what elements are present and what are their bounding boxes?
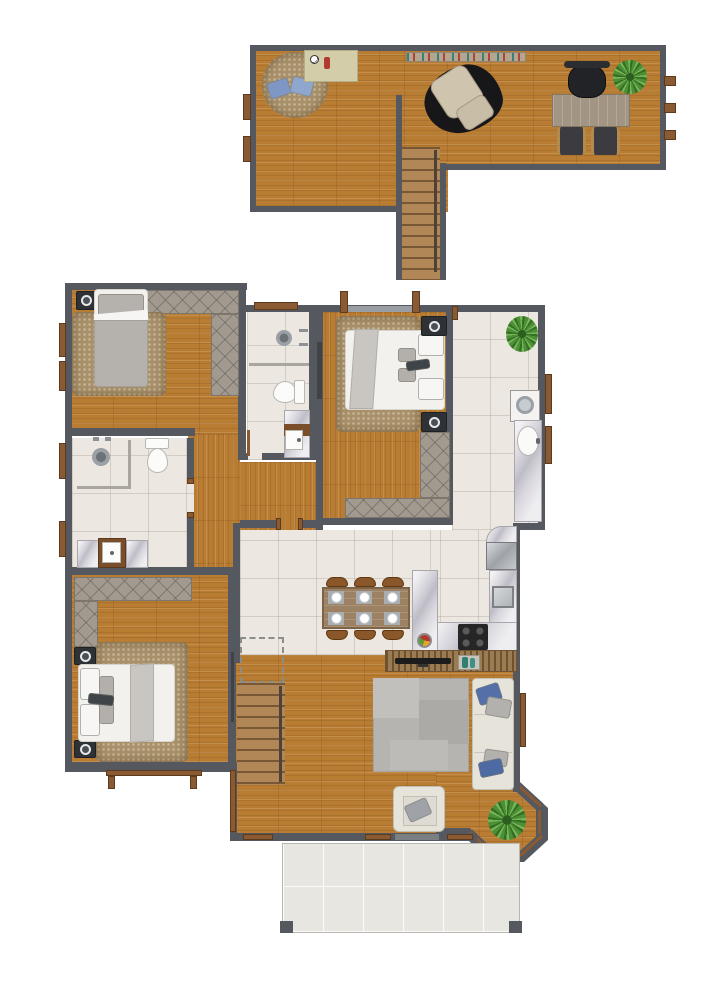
upper-wall-bottom-right bbox=[442, 164, 666, 170]
towel-hook-icon bbox=[105, 437, 111, 441]
plate-icon bbox=[387, 613, 398, 624]
kitchen-plant-icon bbox=[506, 316, 538, 352]
bathroom2-window-icon bbox=[59, 443, 66, 479]
bedroom2-pillow-white bbox=[418, 378, 444, 400]
bedroom2-window-post-icon bbox=[412, 291, 420, 313]
loft-window-icon bbox=[243, 94, 251, 120]
wall-bedroom3-top bbox=[65, 567, 235, 575]
porch-floor bbox=[282, 843, 520, 933]
dining-chair bbox=[326, 630, 348, 640]
porch-post bbox=[509, 921, 522, 933]
study-window-icon bbox=[664, 76, 676, 86]
bedroom3-deck-post bbox=[108, 776, 115, 789]
plate-icon bbox=[331, 613, 342, 624]
living-plant-icon bbox=[488, 800, 526, 840]
study-window-icon bbox=[664, 130, 676, 140]
plate-icon bbox=[387, 592, 398, 603]
understair-storage-outline bbox=[240, 637, 284, 683]
toilet-icon bbox=[147, 448, 168, 473]
soccer-ball-icon bbox=[310, 55, 319, 64]
bathroom2-faucet-icon bbox=[110, 551, 114, 555]
cooktop bbox=[458, 624, 488, 650]
porch-post bbox=[280, 921, 293, 933]
bottom-window-icon bbox=[447, 834, 473, 840]
bedroom2-closet-bottom bbox=[345, 498, 450, 518]
bedroom1-window-icon bbox=[59, 323, 66, 357]
guest-chair bbox=[591, 127, 620, 155]
bedroom3-door-leaf bbox=[231, 652, 234, 722]
sofa-pillow-gray bbox=[485, 696, 513, 719]
plate-icon bbox=[331, 592, 342, 603]
dining-chair bbox=[382, 577, 404, 587]
bathroom1-faucet-icon bbox=[297, 438, 301, 442]
decor-bottles-icon bbox=[470, 658, 475, 668]
bedroom1-closet-top bbox=[143, 290, 239, 314]
bathroom2-vanity-left bbox=[77, 540, 99, 568]
shower-screen bbox=[77, 486, 131, 489]
wall-bedroom1-right bbox=[238, 283, 246, 460]
fruit-bowl-icon bbox=[417, 633, 432, 648]
bedroom1-nightstand-speaker bbox=[76, 291, 96, 310]
wall-top-bedroom1 bbox=[65, 283, 247, 290]
bedroom3-pillow-white bbox=[80, 704, 100, 736]
bedroom2-closet-side bbox=[420, 432, 450, 498]
living-west-window-icon bbox=[230, 770, 236, 832]
porch-door-opening bbox=[395, 834, 439, 840]
desk bbox=[552, 94, 630, 127]
wall-bathroom2-right-a bbox=[187, 438, 194, 483]
living-stair-railing bbox=[279, 686, 282, 782]
towel-bar-icon bbox=[299, 343, 308, 346]
kitchen-faucet-icon bbox=[536, 438, 540, 444]
dining-chair bbox=[326, 577, 348, 587]
fridge bbox=[486, 542, 517, 570]
bathroom2-door-post-icon bbox=[187, 512, 194, 518]
upper-wall-left bbox=[250, 45, 256, 212]
wall-bathroom1-right bbox=[309, 305, 316, 460]
wall-left-main bbox=[65, 283, 72, 772]
wall-bedroom2-bottom bbox=[323, 518, 452, 525]
towel-bar-icon bbox=[299, 329, 308, 332]
dining-chair bbox=[354, 577, 376, 587]
living-rug-patch bbox=[373, 678, 419, 718]
bathroom1-window-icon bbox=[254, 302, 298, 310]
study-window-icon bbox=[664, 103, 676, 113]
bedroom2-window-post-icon bbox=[340, 291, 348, 313]
wall-dining-left bbox=[233, 523, 240, 663]
plate-icon bbox=[359, 592, 370, 603]
stair-shaft-wall-right bbox=[440, 163, 446, 280]
wall-right-step bbox=[513, 523, 545, 530]
living-window-icon bbox=[520, 693, 526, 747]
living-staircase bbox=[237, 683, 285, 785]
kitchen-square-sink bbox=[492, 586, 514, 608]
decor-bottles-icon bbox=[462, 657, 468, 668]
bedroom3-closet-top bbox=[74, 577, 192, 601]
office-chair bbox=[568, 64, 606, 98]
kitchen-door-post-icon bbox=[452, 306, 458, 320]
wall-bathroom2-right-b bbox=[187, 518, 194, 570]
bathroom2-vanity-right bbox=[126, 540, 148, 568]
bedroom2-pillow-white bbox=[418, 334, 444, 356]
living-rug-patch bbox=[390, 740, 448, 770]
study-plant-icon bbox=[613, 60, 647, 94]
wall-dining-doorway-b bbox=[300, 520, 323, 528]
bedroom1-duvet bbox=[94, 320, 148, 387]
bedroom1-window-icon bbox=[59, 361, 66, 391]
bedroom3-closet-side bbox=[74, 601, 98, 647]
shower-screen bbox=[249, 363, 309, 366]
toilet-tank bbox=[294, 380, 305, 404]
bedroom3-blanket-fold bbox=[130, 663, 154, 743]
plate-icon bbox=[359, 613, 370, 624]
bedroom2-door-leaf bbox=[317, 342, 322, 399]
kitchen-window-icon bbox=[545, 426, 552, 464]
dining-chair bbox=[382, 630, 404, 640]
shelf-decor bbox=[406, 52, 526, 62]
wall-bedroom1-bottom bbox=[65, 428, 195, 436]
wall-dining-doorway-a bbox=[240, 520, 278, 528]
bedroom2-nightstand-speaker bbox=[421, 412, 447, 432]
dining-chair bbox=[354, 630, 376, 640]
kitchen-window-icon bbox=[545, 374, 552, 414]
bedroom3-nightstand-speaker bbox=[74, 740, 96, 758]
shower-screen bbox=[128, 440, 131, 489]
towel-hook-icon bbox=[93, 437, 99, 441]
toy-figure-icon bbox=[324, 57, 330, 69]
bedroom1-closet-side bbox=[211, 314, 239, 396]
bedroom3-deck-bar bbox=[106, 770, 202, 776]
bottom-window-icon bbox=[365, 834, 391, 840]
bathroom1-door-leaf bbox=[247, 430, 250, 456]
upper-wall-bottom-left bbox=[250, 206, 402, 212]
dining-door-post-icon bbox=[298, 518, 303, 530]
loft-window-icon bbox=[243, 136, 251, 162]
shower-head-icon bbox=[276, 330, 292, 346]
bathroom2-window-icon bbox=[59, 521, 66, 557]
bedroom2-window-glazing bbox=[348, 306, 412, 312]
bottom-window-icon bbox=[243, 834, 273, 840]
office-chair-back bbox=[564, 61, 610, 68]
floor-plan-canvas bbox=[0, 0, 720, 1000]
washing-machine-drum-icon bbox=[516, 396, 534, 414]
guest-chair bbox=[557, 127, 586, 155]
tv-stand-icon bbox=[418, 664, 428, 667]
stair-railing bbox=[434, 150, 437, 272]
bedroom3-deck-post bbox=[190, 776, 197, 789]
bathroom2-door-post-icon bbox=[187, 478, 194, 484]
bedroom2-nightstand-speaker bbox=[421, 316, 447, 336]
shower-head-icon bbox=[92, 448, 110, 466]
dining-door-post-icon bbox=[276, 518, 281, 530]
living-rug-patch bbox=[419, 700, 469, 744]
bedroom3-nightstand-speaker bbox=[74, 647, 96, 665]
